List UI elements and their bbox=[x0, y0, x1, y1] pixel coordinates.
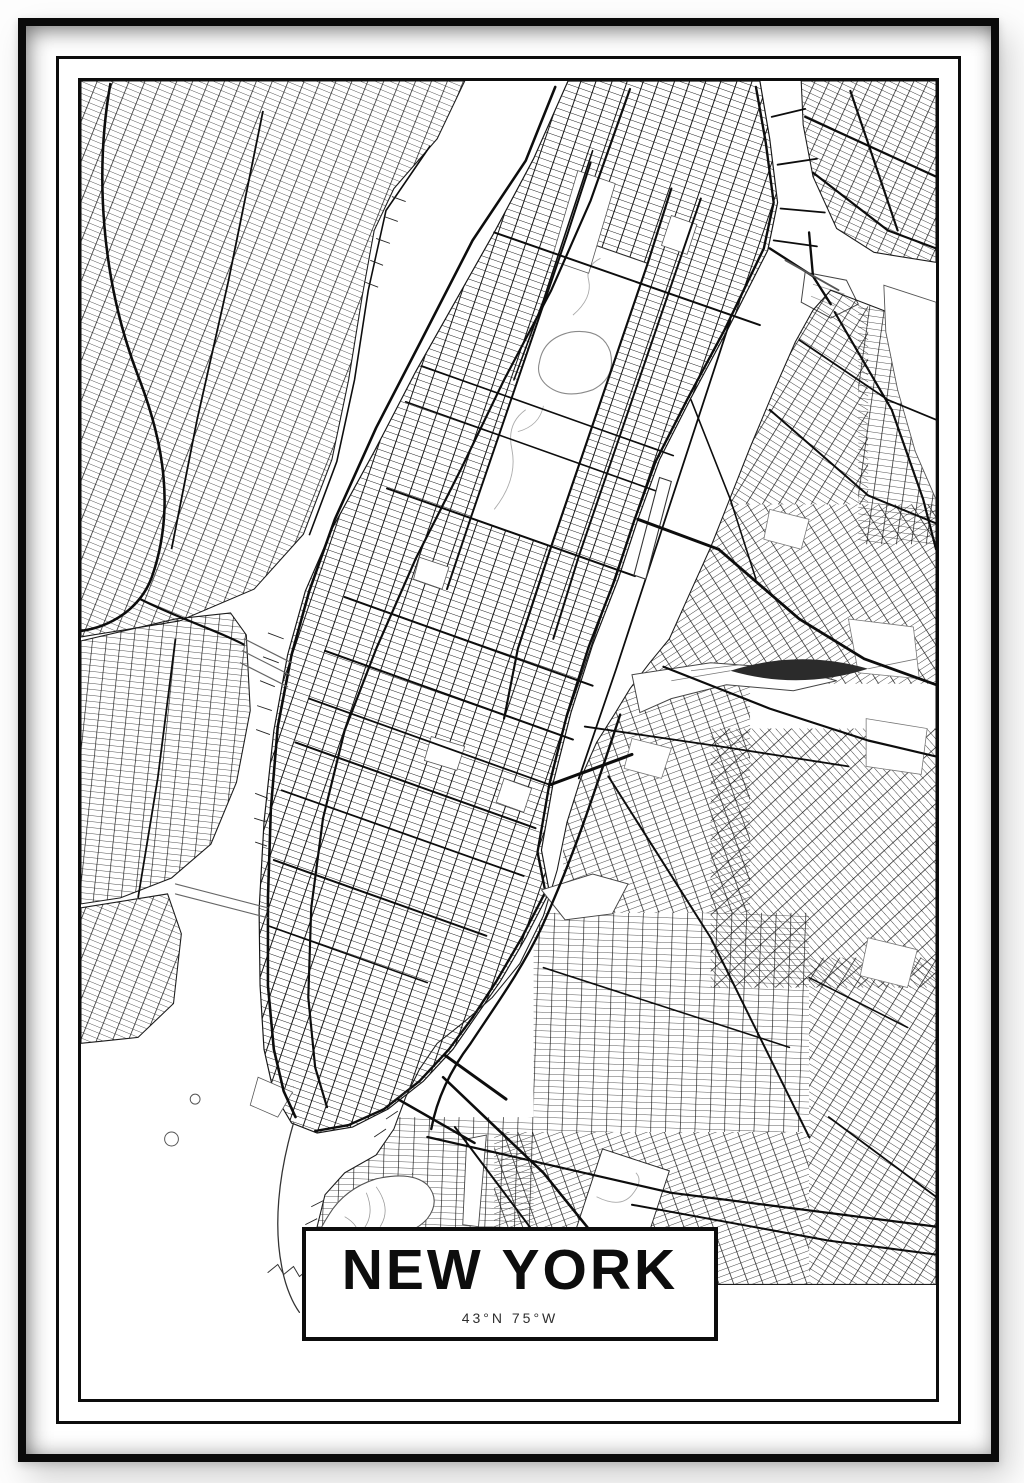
ellis-island bbox=[190, 1094, 200, 1104]
city-name-label: NEW YORK bbox=[342, 1242, 678, 1299]
map-title-box: NEW YORK 43°N 75°W bbox=[302, 1227, 718, 1341]
city-map-graphic bbox=[81, 81, 936, 1399]
poster-inner-border: NEW YORK 43°N 75°W bbox=[56, 56, 961, 1424]
coordinates-label: 43°N 75°W bbox=[462, 1310, 559, 1326]
poster-frame: NEW YORK 43°N 75°W bbox=[18, 18, 999, 1462]
poster-mat: NEW YORK 43°N 75°W bbox=[26, 26, 991, 1454]
map-border: NEW YORK 43°N 75°W bbox=[78, 78, 939, 1402]
liberty-island bbox=[165, 1132, 179, 1146]
